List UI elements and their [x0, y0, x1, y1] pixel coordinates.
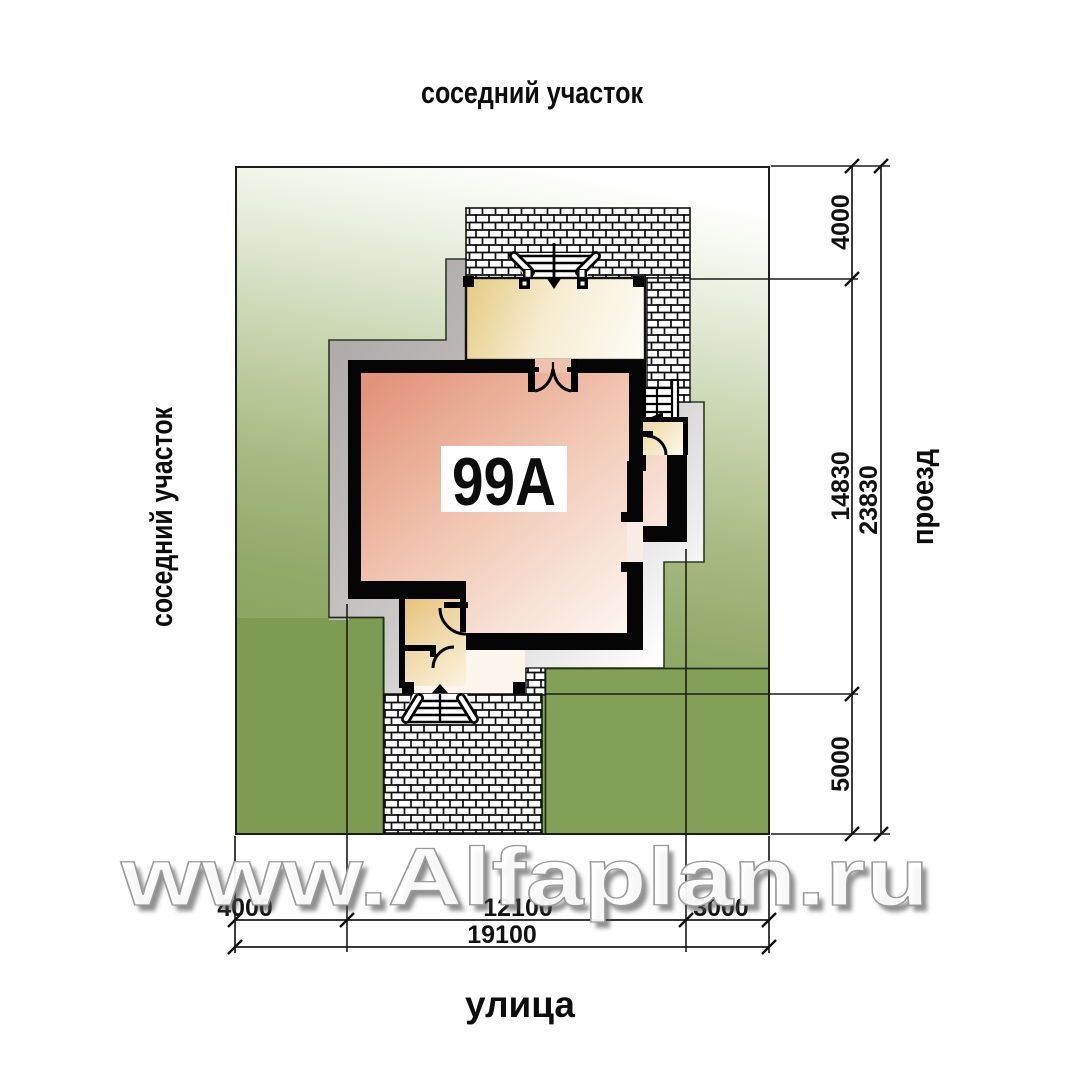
svg-text:99A: 99A — [452, 444, 556, 520]
svg-text:проезд: проезд — [905, 449, 940, 545]
svg-text:23830: 23830 — [855, 465, 883, 535]
svg-text:соседний участок: соседний участок — [421, 75, 643, 110]
svg-text:5000: 5000 — [827, 736, 855, 792]
svg-text:соседний участок: соседний участок — [144, 407, 179, 627]
svg-text:4000: 4000 — [827, 194, 855, 250]
svg-text:www.Alfaplan.ru: www.Alfaplan.ru — [120, 832, 929, 923]
svg-text:улица: улица — [465, 984, 575, 1025]
svg-text:14830: 14830 — [827, 451, 855, 521]
